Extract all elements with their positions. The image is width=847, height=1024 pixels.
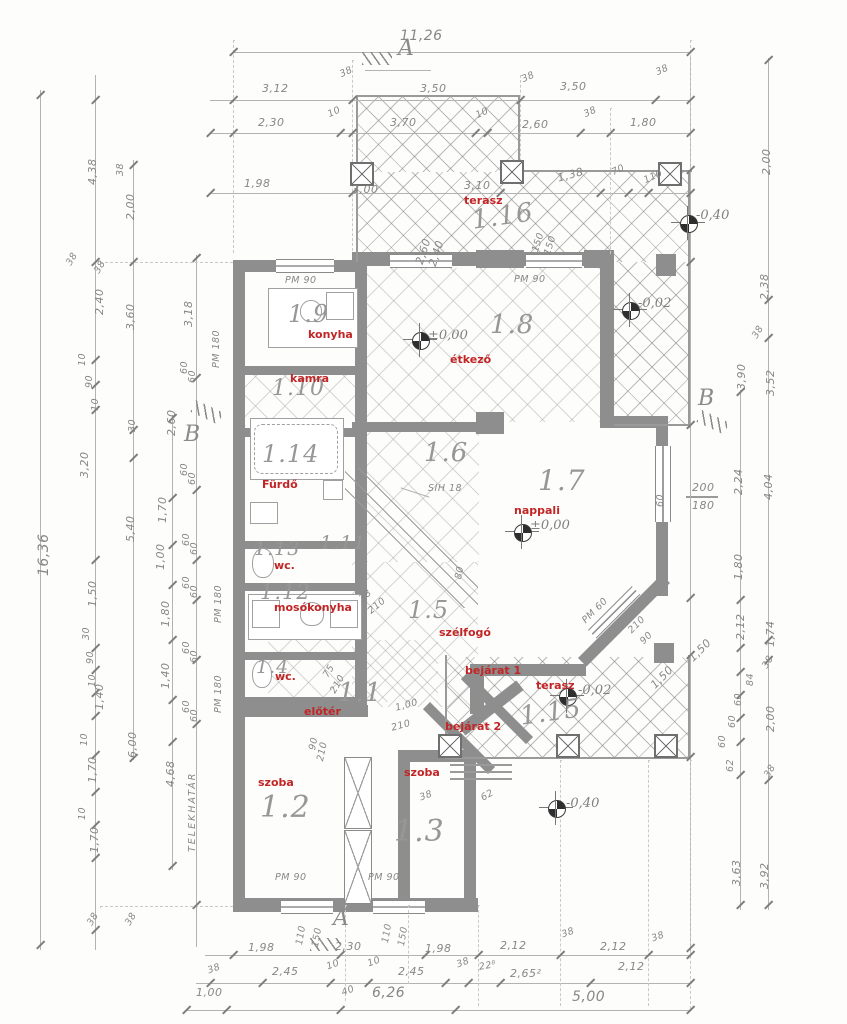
extension-line <box>233 40 235 253</box>
dimension-chain-line <box>233 52 690 53</box>
dim: 2,45 <box>398 965 425 978</box>
floor-hatch <box>366 268 600 422</box>
dim: 5,40 <box>124 516 137 543</box>
dim: 60 <box>187 472 198 485</box>
column-symbol <box>654 734 678 758</box>
dimension-chain-line <box>210 100 690 101</box>
level-value: -0,40 <box>566 796 599 811</box>
level-value: ±0,00 <box>428 328 468 343</box>
floor-plan-canvas: ±0,00 ±0,00 -0,02 -0,40 -0,02 -0,40 A A … <box>0 0 847 1024</box>
extension-line <box>100 262 233 264</box>
parapet-callout: PM 180 <box>211 330 222 368</box>
dim: 3,63 <box>730 860 743 887</box>
window-callout: PM 90 <box>368 872 400 883</box>
room-name-nappali: nappali <box>514 504 560 517</box>
room-name-szoba-3: szoba <box>404 766 440 779</box>
dim: 62 <box>479 787 496 803</box>
window-symbol <box>373 900 425 914</box>
window-callout: PM 90 <box>285 275 317 286</box>
column-symbol <box>556 734 580 758</box>
wall-segment <box>476 412 504 434</box>
dim: 38 <box>654 62 671 78</box>
dim: 4,68 <box>164 761 177 788</box>
terrace-edge-line <box>450 771 512 773</box>
dim: 110 <box>294 925 308 946</box>
room-name-wc-13: wc. <box>274 559 295 572</box>
dim-top-total: 11,26 <box>400 28 443 44</box>
dim: 1,70 <box>86 757 99 784</box>
window-size-width: 200 <box>692 481 715 494</box>
room-name-szelfogo: szélfogó <box>439 626 491 639</box>
dim: 2,65² <box>510 967 541 980</box>
dim: 22⁸ <box>478 959 497 973</box>
dim: 1,98 <box>244 177 271 190</box>
dim: 60 <box>187 370 198 383</box>
dimension-chain-line <box>205 955 690 956</box>
extension-line <box>690 40 692 169</box>
dimension-chain-line <box>40 90 41 950</box>
terrace-edge-line <box>614 424 690 426</box>
dim: 38 <box>750 324 766 341</box>
room-name-terasz-15: terasz <box>536 679 575 692</box>
wall-segment <box>476 250 524 268</box>
chimney-flue <box>344 830 372 904</box>
dim: 3,00 <box>352 183 379 196</box>
room-code-1-14: 1.14 <box>262 440 319 468</box>
dimension-chain-line <box>133 160 134 760</box>
dim: 38 <box>760 654 776 671</box>
chimney-flue <box>344 757 372 829</box>
dim: 38 <box>206 962 222 977</box>
fixture <box>323 480 343 500</box>
room-code-1-13: 1.13 <box>254 538 300 560</box>
terrace-edge-line <box>450 778 512 780</box>
dimension-chain-line <box>172 415 173 870</box>
dim: 1,80 <box>630 116 657 129</box>
dim: 1,40 <box>93 684 106 711</box>
dim: 1,80 <box>732 554 745 581</box>
dimension-chain-line <box>95 75 96 950</box>
room-name-szoba-2: szoba <box>258 776 294 789</box>
dim: 38 <box>762 763 778 780</box>
level-value: ±0,00 <box>530 518 570 533</box>
dim: 38 <box>123 911 139 928</box>
dim: 10 <box>326 104 343 120</box>
dim: 1,98 <box>248 941 275 954</box>
dim: 2,12 <box>500 939 527 952</box>
wall-segment <box>600 252 614 428</box>
window-symbol <box>655 446 671 522</box>
dim: 2,12 <box>618 960 645 973</box>
level-value: -0,40 <box>696 208 729 223</box>
dimension-chain-line <box>210 133 690 134</box>
dim: 1,70 <box>88 827 101 854</box>
dim: 3,70 <box>390 116 417 129</box>
room-code-1-5: 1.5 <box>408 596 449 624</box>
dim: 3,20 <box>78 452 91 479</box>
room-code-1-9: 1.9 <box>288 300 329 328</box>
dim: 3,90 <box>735 364 748 391</box>
dim: 6,00 <box>126 732 139 759</box>
terrace-edge-line <box>450 764 512 766</box>
dim: 38 <box>520 69 537 85</box>
dim: 10 <box>79 733 90 746</box>
dim: 90 <box>638 630 655 647</box>
section-line <box>365 70 431 71</box>
dim: 3,60 <box>124 304 137 331</box>
dim: 60 <box>733 693 744 706</box>
dim: 2,24 <box>732 469 745 496</box>
dim: 2,00 <box>764 706 777 733</box>
room-name-eloter: előtér <box>304 705 341 718</box>
dimension-chain-line <box>186 1010 690 1011</box>
dim: 10 <box>77 807 88 820</box>
dim: 2,38 <box>758 274 771 301</box>
dim: 2,60 <box>522 118 549 131</box>
dim: 2,12 <box>734 614 747 641</box>
dimension-chain-line <box>210 193 690 194</box>
column-symbol <box>438 734 462 758</box>
dim: 60 <box>655 494 666 507</box>
dim: 90 <box>84 375 95 388</box>
dim: 60 <box>717 735 728 748</box>
section-letter-a-bottom: A <box>333 906 349 931</box>
extension-line <box>100 906 233 908</box>
dim: 38 <box>582 104 599 120</box>
dim: 10 <box>325 958 341 973</box>
entrance-1-label: bejárat 1 <box>465 664 521 677</box>
dim: 3,50 <box>560 80 587 93</box>
dim: 1,80 <box>159 601 172 628</box>
room-name-kamra: kamra <box>290 372 329 385</box>
room-code-1-7: 1.7 <box>538 464 586 497</box>
dim: 5,00 <box>572 989 605 1005</box>
extension-line <box>648 760 650 1006</box>
dim: 38 <box>560 926 576 941</box>
window-size-height: 180 <box>692 499 715 512</box>
parapet-callout: PM 180 <box>213 675 224 713</box>
room-name-konyha: konyha <box>308 328 353 341</box>
terrace-edge-line <box>356 95 520 97</box>
section-hash-icon <box>362 52 392 65</box>
dim: 38 <box>650 930 666 945</box>
dim: 1,74 <box>764 621 777 648</box>
level-value: -0,02 <box>638 296 671 311</box>
dim: 1,00 <box>196 986 223 999</box>
dim: 2,45 <box>272 965 299 978</box>
dim: 38 <box>455 956 471 971</box>
dim: 10 <box>77 353 88 366</box>
dim: 60 <box>727 715 738 728</box>
dim: 38 <box>418 789 434 804</box>
room-name-wc-4: wc. <box>275 670 296 683</box>
dim: 210 <box>390 718 412 734</box>
room-name-furdo: Fürdő <box>262 478 298 491</box>
terrace-hatch <box>614 262 690 426</box>
dim: 3,18 <box>182 301 195 328</box>
fixture <box>326 292 354 320</box>
wall-segment <box>656 254 676 276</box>
dim: 38 <box>115 163 126 176</box>
dim: 3,92 <box>758 863 771 890</box>
dim: 84 <box>745 673 756 686</box>
dim: 210 <box>315 741 330 762</box>
wall-segment <box>352 422 484 432</box>
dim: 60 <box>189 709 200 722</box>
dim: 90 <box>85 651 96 664</box>
level-value: -0,02 <box>578 683 611 698</box>
room-code-1-8: 1.8 <box>490 310 534 340</box>
dim: 30 <box>127 419 138 432</box>
dim-left-total: 16,36 <box>36 533 52 576</box>
dim: 40 <box>340 984 356 999</box>
dim: 1,70 <box>156 497 169 524</box>
extension-line <box>352 60 354 251</box>
room-code-1-6: 1.6 <box>424 438 468 468</box>
dim: 3,10 <box>464 179 491 192</box>
entrance-2-label: bejárat 2 <box>445 720 501 733</box>
dim: 1,98 <box>425 942 452 955</box>
dim: 1,00 <box>154 544 167 571</box>
dim: 6,26 <box>372 985 405 1001</box>
wall-segment <box>233 652 365 660</box>
dim: 2,12 <box>600 940 627 953</box>
dim: 1,50 <box>86 581 99 608</box>
window-symbol <box>281 900 333 914</box>
dim: 1,40 <box>159 663 172 690</box>
dim: 10 <box>90 398 101 411</box>
site-boundary-label: TELEKHATÁR <box>187 772 198 852</box>
dim: 2,60 <box>165 410 178 437</box>
dim: 3,52 <box>764 370 777 397</box>
dim: 2,40 <box>93 289 106 316</box>
window-callout: PM 90 <box>275 872 307 883</box>
dim: 30 <box>81 627 92 640</box>
room-name-mosokonyha: mosókonyha <box>274 601 352 614</box>
dim: 60 <box>189 542 200 555</box>
column-symbol <box>500 160 524 184</box>
section-hash-icon <box>697 410 730 434</box>
dim: 2,00 <box>760 149 773 176</box>
note-callout: SIH 18 <box>428 483 462 494</box>
room-code-1-3: 1.3 <box>394 814 445 849</box>
dim: 110 <box>380 923 394 944</box>
dim: 3,50 <box>420 82 447 95</box>
window-callout: PM 90 <box>514 274 546 285</box>
window-symbol <box>526 254 582 268</box>
dim: 10 <box>366 955 382 970</box>
parapet-callout: PM 180 <box>213 585 224 623</box>
room-code-1-2: 1.2 <box>260 790 311 825</box>
window-symbol <box>276 259 334 273</box>
fixture <box>250 502 278 524</box>
section-letter-b-left: B <box>184 422 200 447</box>
dim: 2,30 <box>335 940 362 953</box>
dim: 4,38 <box>86 159 99 186</box>
section-letter-b-right: B <box>698 386 714 411</box>
wall-segment <box>654 643 674 663</box>
room-name-etkezo: étkező <box>450 353 491 366</box>
dim: 2,00 <box>124 194 137 221</box>
dim: 3,12 <box>262 82 289 95</box>
room-code-1-11: 1.11 <box>320 532 366 554</box>
dim: 38 <box>64 251 80 268</box>
dim: 60 <box>189 650 200 663</box>
dim: 2,30 <box>258 116 285 129</box>
dim: 62 <box>725 759 736 772</box>
dim: 60 <box>189 585 200 598</box>
extension-line <box>690 760 692 1009</box>
dim: 4,04 <box>762 474 775 501</box>
